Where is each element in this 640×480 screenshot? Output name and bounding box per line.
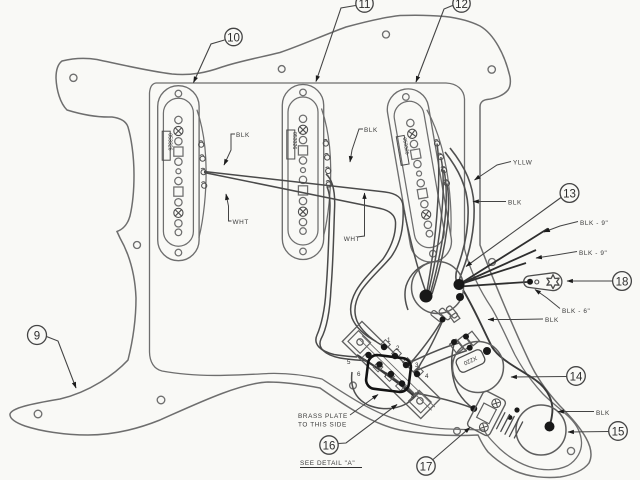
svg-text:18: 18 bbox=[616, 277, 629, 289]
svg-text:YLLW: YLLW bbox=[513, 160, 533, 167]
svg-text:BLK: BLK bbox=[545, 317, 559, 324]
svg-text:TO THIS SIDE: TO THIS SIDE bbox=[298, 422, 347, 429]
svg-text:13: 13 bbox=[563, 189, 576, 201]
svg-text:4: 4 bbox=[425, 373, 429, 380]
svg-text:BLK: BLK bbox=[508, 200, 522, 207]
svg-text:15: 15 bbox=[612, 427, 625, 439]
svg-text:BLK - 9": BLK - 9" bbox=[579, 250, 607, 257]
svg-text:BRASS PLATE: BRASS PLATE bbox=[298, 413, 348, 420]
svg-text:SEE DETAIL "A": SEE DETAIL "A" bbox=[300, 460, 355, 467]
svg-text:17: 17 bbox=[420, 462, 433, 474]
svg-text:2: 2 bbox=[396, 345, 400, 352]
svg-text:1: 1 bbox=[387, 337, 391, 344]
svg-text:10: 10 bbox=[227, 33, 240, 45]
svg-text:9: 9 bbox=[34, 331, 40, 343]
svg-text:12: 12 bbox=[455, 0, 468, 11]
svg-text:5: 5 bbox=[347, 359, 351, 366]
svg-text:8: 8 bbox=[411, 393, 415, 400]
svg-text:BLK: BLK bbox=[364, 127, 378, 134]
svg-text:7: 7 bbox=[384, 372, 388, 379]
svg-text:BLK: BLK bbox=[596, 410, 610, 417]
svg-text:BLK - 6": BLK - 6" bbox=[562, 308, 590, 315]
svg-text:BLK - 9": BLK - 9" bbox=[580, 220, 608, 227]
svg-text:BLK: BLK bbox=[236, 132, 250, 139]
svg-text:16: 16 bbox=[323, 441, 336, 453]
svg-text:3: 3 bbox=[415, 362, 419, 369]
svg-text:WHT: WHT bbox=[233, 219, 249, 226]
svg-text:11: 11 bbox=[359, 0, 371, 11]
svg-text:6: 6 bbox=[357, 371, 361, 378]
svg-text:14: 14 bbox=[570, 372, 583, 384]
